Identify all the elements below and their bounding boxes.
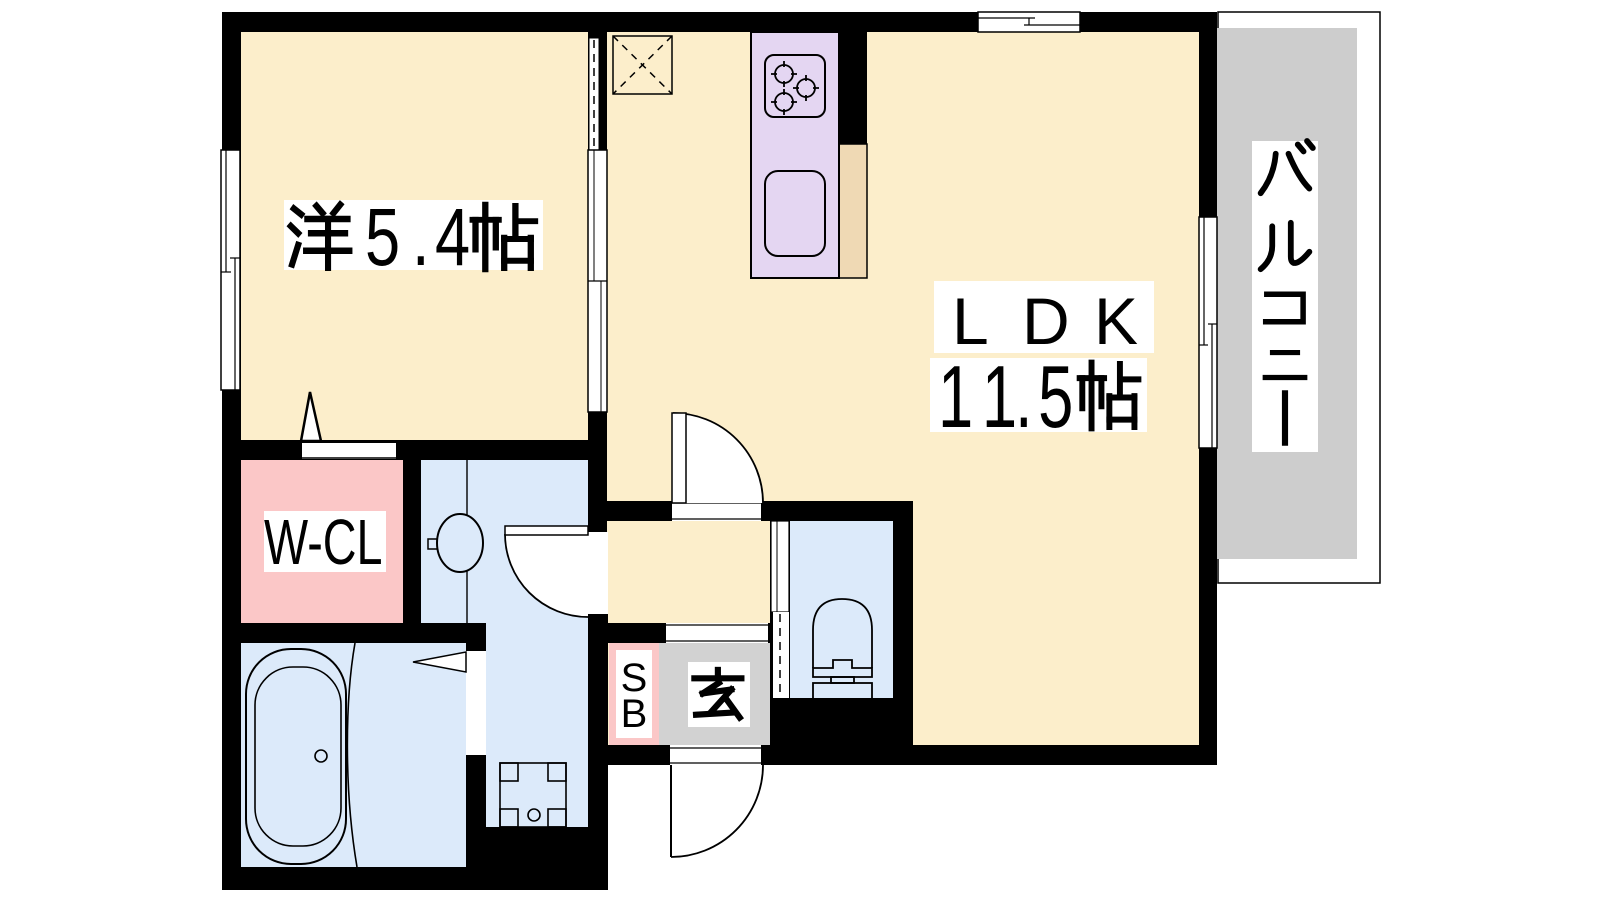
svg-text:W-CL: W-CL xyxy=(264,506,383,578)
svg-text:5: 5 xyxy=(365,191,400,283)
svg-text:4: 4 xyxy=(435,191,470,283)
svg-text:1: 1 xyxy=(938,349,973,447)
svg-text:K: K xyxy=(1094,284,1138,358)
svg-text:1: 1 xyxy=(982,349,1017,447)
svg-text:.: . xyxy=(1015,349,1033,447)
svg-text:D: D xyxy=(1022,284,1070,358)
svg-text:5: 5 xyxy=(1038,349,1073,447)
svg-text:B: B xyxy=(621,692,648,736)
svg-text:L: L xyxy=(952,284,989,358)
svg-text:.: . xyxy=(412,191,430,283)
